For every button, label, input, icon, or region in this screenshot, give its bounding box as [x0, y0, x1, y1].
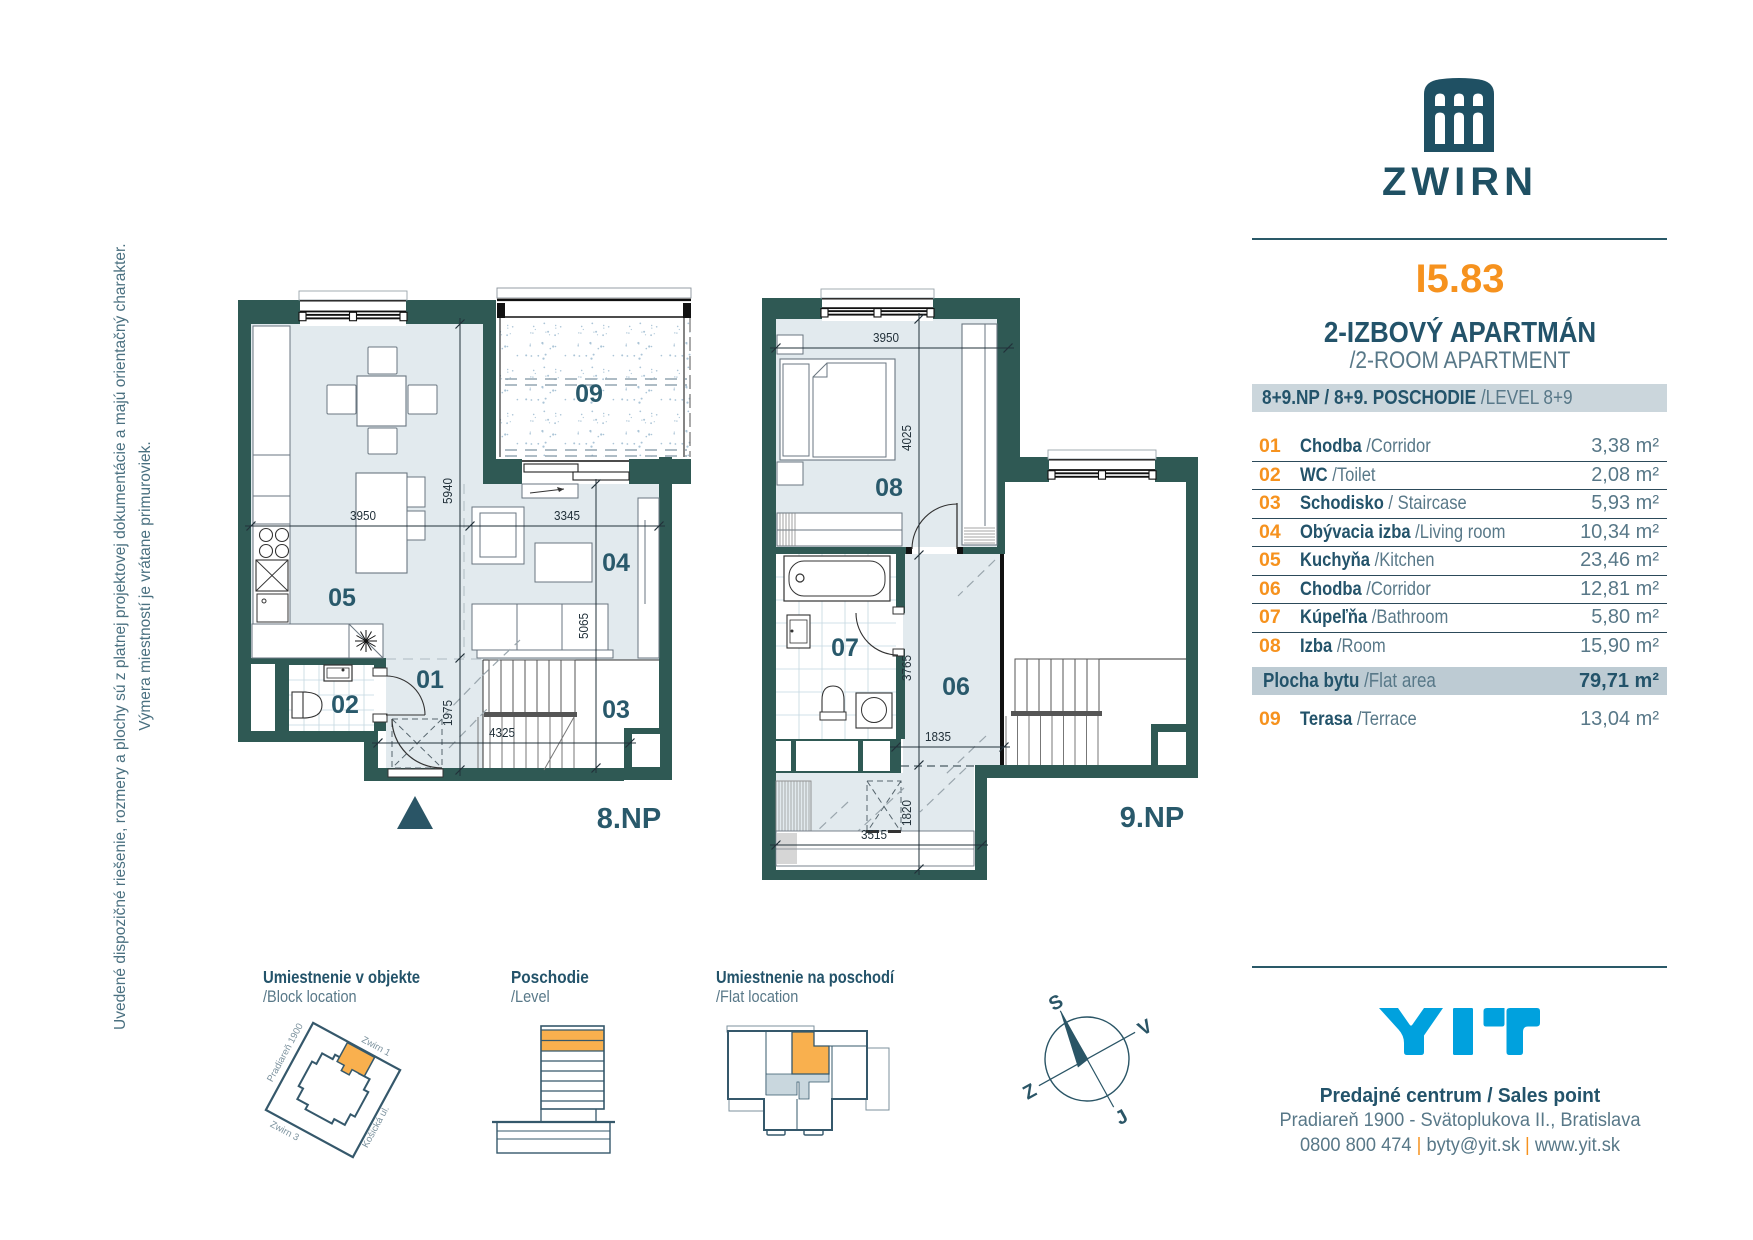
svg-text:3345: 3345 [554, 509, 580, 523]
svg-text:5940: 5940 [441, 478, 455, 504]
svg-text:S: S [1045, 990, 1067, 1016]
svg-text:J: J [1112, 1105, 1132, 1130]
svg-text:09: 09 [575, 380, 603, 408]
svg-text:06: 06 [942, 673, 970, 701]
svg-text:02: 02 [331, 691, 359, 719]
svg-text:Košická ul.: Košická ul. [360, 1104, 392, 1150]
svg-text:3515: 3515 [861, 828, 887, 842]
svg-text:07: 07 [831, 634, 859, 662]
svg-text:05: 05 [328, 584, 356, 612]
svg-text:1975: 1975 [441, 700, 455, 726]
svg-text:4325: 4325 [489, 726, 515, 740]
svg-text:3950: 3950 [873, 331, 899, 345]
svg-text:Zwirn 3: Zwirn 3 [268, 1119, 301, 1144]
svg-text:1820: 1820 [900, 800, 914, 826]
svg-text:01: 01 [416, 666, 444, 694]
svg-text:04: 04 [602, 549, 630, 577]
svg-text:V: V [1134, 1015, 1156, 1041]
svg-text:1835: 1835 [925, 730, 951, 744]
svg-text:5065: 5065 [577, 613, 591, 639]
svg-text:9.NP: 9.NP [1120, 802, 1184, 834]
svg-text:3950: 3950 [350, 509, 376, 523]
svg-text:4025: 4025 [900, 425, 914, 451]
svg-text:Z: Z [1019, 1079, 1040, 1104]
svg-text:8.NP: 8.NP [597, 803, 661, 835]
svg-text:08: 08 [875, 474, 903, 502]
svg-text:3765: 3765 [900, 655, 914, 681]
svg-text:03: 03 [602, 696, 630, 724]
